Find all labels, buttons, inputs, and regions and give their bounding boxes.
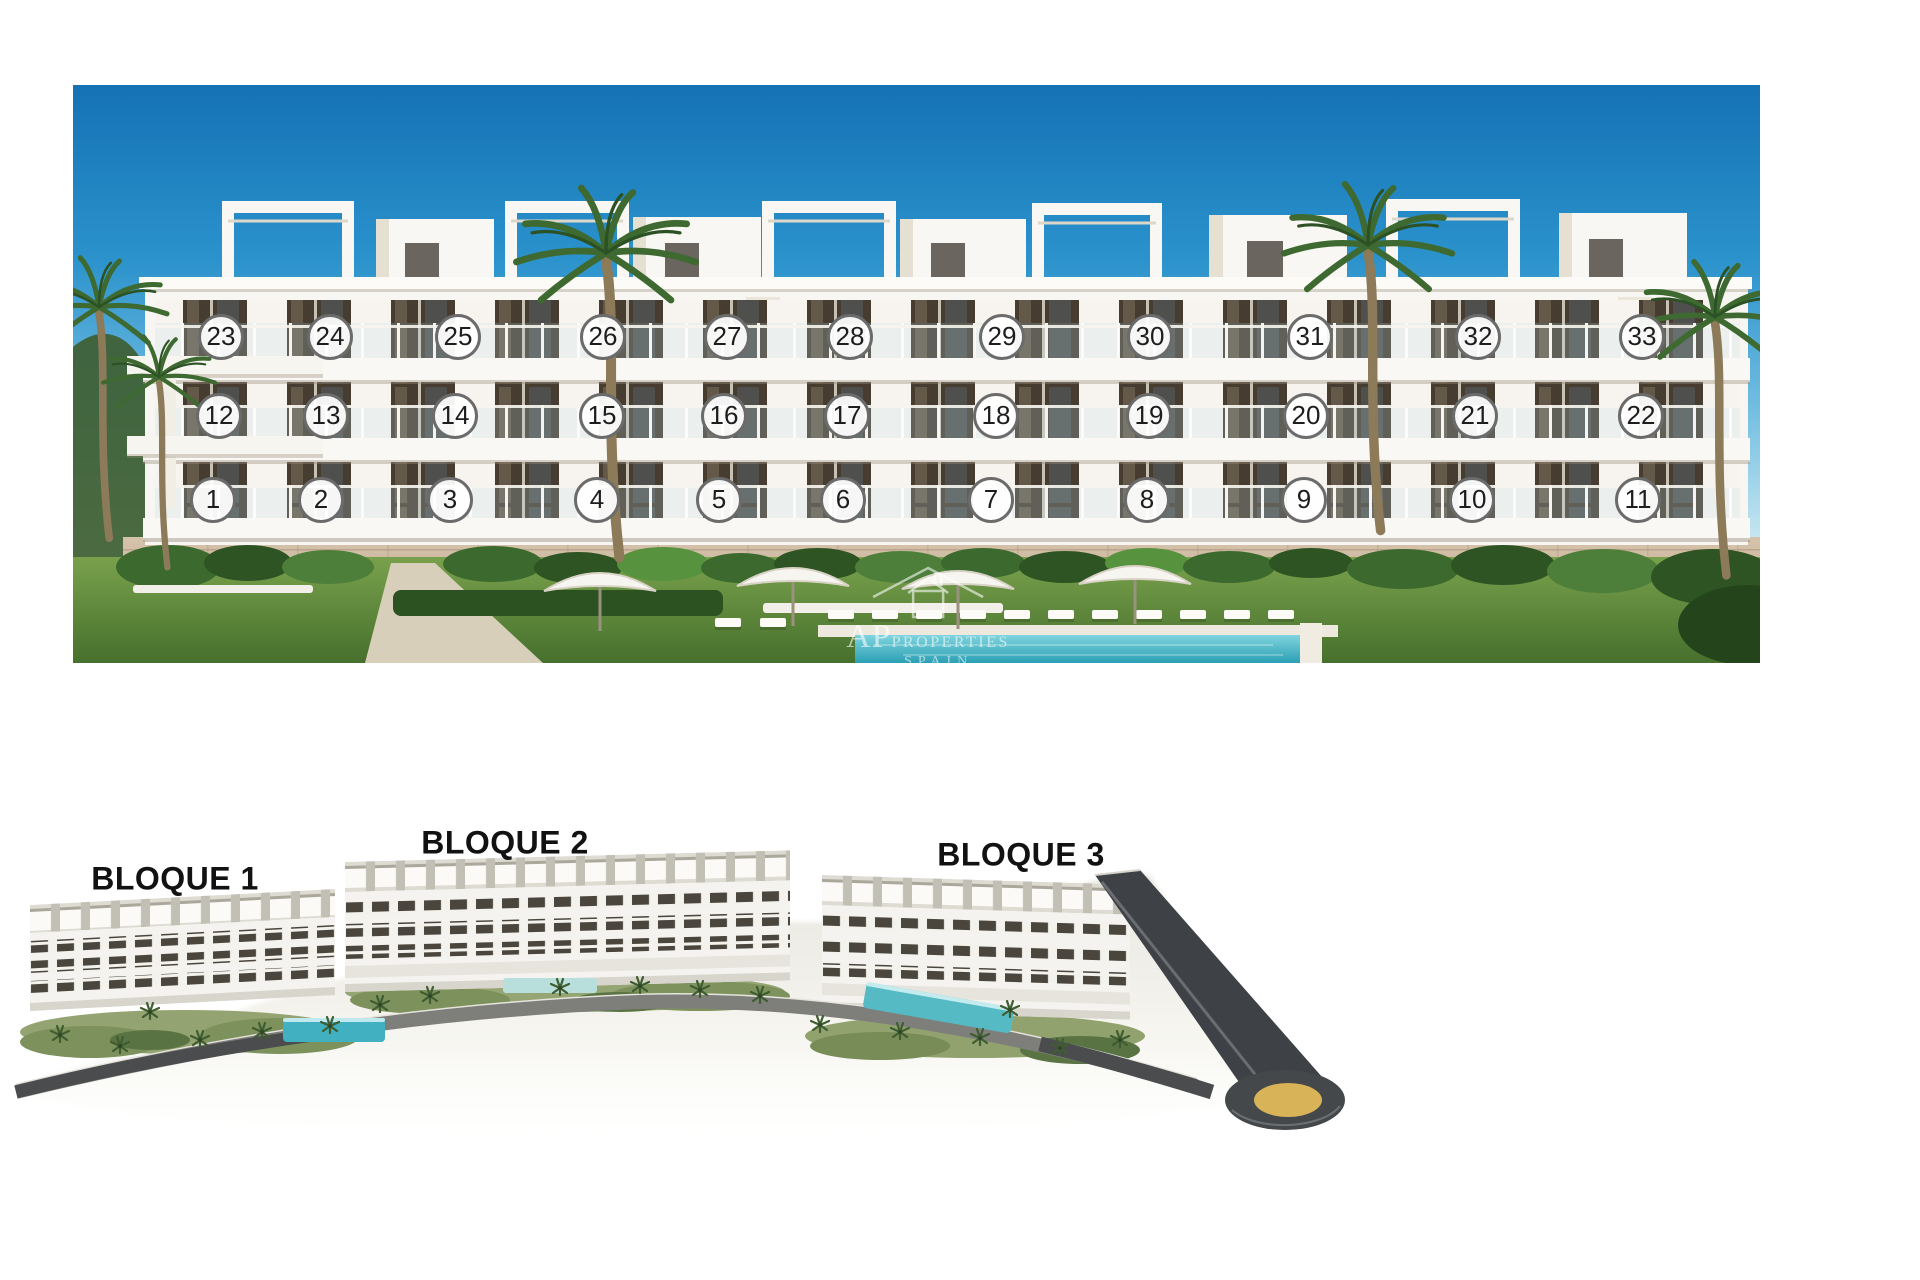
unit-circle-2: 2 <box>298 477 344 523</box>
unit-circle-24: 24 <box>307 314 353 360</box>
unit-circle-16: 16 <box>701 393 747 439</box>
roundabout <box>1225 1070 1345 1130</box>
unit-circle-26: 26 <box>580 314 626 360</box>
block-2 <box>345 850 790 992</box>
block-label-1: BLOQUE 1 <box>91 861 259 898</box>
unit-circle-3: 3 <box>427 477 473 523</box>
unit-circle-19: 19 <box>1126 393 1172 439</box>
unit-circle-11: 11 <box>1615 477 1661 523</box>
masterplan-rendering: BLOQUE 1BLOQUE 2BLOQUE 3 <box>0 800 1400 1220</box>
garden <box>73 545 1760 663</box>
unit-circle-13: 13 <box>303 393 349 439</box>
unit-circle-18: 18 <box>973 393 1019 439</box>
unit-circle-25: 25 <box>435 314 481 360</box>
unit-circle-21: 21 <box>1452 393 1498 439</box>
unit-circle-23: 23 <box>198 314 244 360</box>
unit-circle-5: 5 <box>696 477 742 523</box>
hedge <box>393 590 723 616</box>
unit-circle-8: 8 <box>1124 477 1170 523</box>
facade-illustration <box>73 85 1760 663</box>
unit-circle-7: 7 <box>968 477 1014 523</box>
unit-circle-4: 4 <box>574 477 620 523</box>
unit-circle-17: 17 <box>824 393 870 439</box>
unit-circle-9: 9 <box>1281 477 1327 523</box>
unit-circle-33: 33 <box>1619 314 1665 360</box>
facade-photo: APPROPERTIES SPAIN 123456789101112131415… <box>73 85 1760 663</box>
block-label-3: BLOQUE 3 <box>937 837 1105 874</box>
unit-circle-10: 10 <box>1449 477 1495 523</box>
pool <box>855 635 1300 663</box>
unit-circle-32: 32 <box>1455 314 1501 360</box>
planter-wall-left <box>133 585 313 593</box>
block-label-2: BLOQUE 2 <box>421 825 589 862</box>
unit-circle-15: 15 <box>579 393 625 439</box>
page: APPROPERTIES SPAIN 123456789101112131415… <box>0 0 1920 1280</box>
block-1 <box>30 889 335 1011</box>
unit-circle-20: 20 <box>1283 393 1329 439</box>
unit-circle-6: 6 <box>820 477 866 523</box>
unit-circle-12: 12 <box>196 393 242 439</box>
unit-circle-1: 1 <box>190 477 236 523</box>
unit-circle-28: 28 <box>827 314 873 360</box>
pool-wall <box>1300 623 1322 663</box>
unit-circle-27: 27 <box>704 314 750 360</box>
unit-circle-29: 29 <box>979 314 1025 360</box>
unit-circle-22: 22 <box>1618 393 1664 439</box>
unit-circle-30: 30 <box>1127 314 1173 360</box>
unit-circle-14: 14 <box>432 393 478 439</box>
unit-circle-31: 31 <box>1287 314 1333 360</box>
